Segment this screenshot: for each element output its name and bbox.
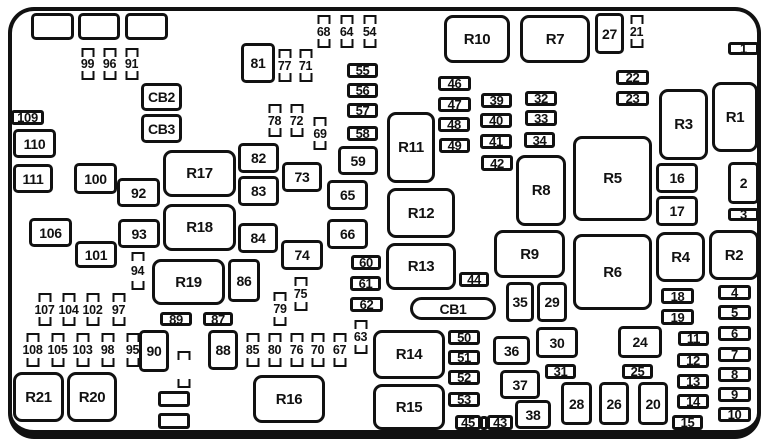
component-label: 51 (457, 351, 471, 364)
fuse-74: 74 (281, 240, 323, 270)
fuse-101: 101 (75, 241, 117, 268)
fuse-number-label: 99 (81, 58, 94, 71)
component-label: 35 (513, 295, 528, 309)
component-label: CB1 (439, 302, 466, 316)
fuse-10: 10 (718, 407, 751, 422)
mini-fuse-85: 85 (245, 333, 260, 367)
fuse-clip-bottom (294, 302, 307, 311)
component-label: R18 (186, 220, 213, 235)
component-label: 86 (237, 274, 252, 288)
component-label: R17 (186, 166, 213, 181)
component-label: 106 (39, 226, 61, 240)
mini-fuse-94: 94 (129, 252, 146, 290)
mini-fuse-71: 71 (298, 49, 313, 82)
fuse-clip-top (76, 333, 89, 342)
fuse-clip-bottom (268, 128, 281, 137)
component-label: 56 (356, 84, 370, 97)
mini-fuse-75: 75 (293, 277, 308, 311)
mini-fuse-76: 76 (289, 333, 304, 367)
empty-fuse-slot (175, 351, 192, 388)
component-label: 1 (740, 42, 747, 55)
fuse-111: 111 (13, 164, 53, 193)
fuse-92: 92 (117, 178, 160, 207)
component-label: 43 (493, 416, 507, 429)
fuse-clip-bottom (81, 71, 94, 80)
fuse-14: 14 (677, 394, 709, 409)
fuse-26: 26 (599, 382, 629, 425)
fuse-81: 81 (241, 43, 275, 83)
fuse-5: 5 (718, 305, 751, 320)
component-label: 32 (534, 92, 548, 105)
fuse-52: 52 (448, 370, 480, 385)
fuse-number-label: 77 (278, 59, 291, 72)
fuse-7: 7 (718, 347, 751, 362)
fuse-30: 30 (536, 327, 578, 358)
relay-r3: R3 (659, 89, 708, 160)
relay-r20: R20 (67, 372, 117, 422)
fuse-56: 56 (347, 83, 378, 98)
fuse-clip-top (86, 293, 99, 302)
relay-r1: R1 (712, 82, 758, 152)
component-label: 37 (513, 378, 528, 392)
fuse-47: 47 (438, 97, 471, 112)
component-label: 50 (457, 331, 471, 344)
fuse-clip-bottom (311, 358, 324, 367)
fuse-number-label: 85 (246, 344, 259, 357)
fuse-clip-bottom (333, 358, 346, 367)
fuse-24: 24 (618, 326, 662, 358)
fuse-55: 55 (347, 63, 378, 78)
component-label: 12 (686, 354, 700, 367)
relay-r18: R18 (163, 204, 236, 251)
fuse-clip-top (268, 104, 281, 113)
fuse-15: 15 (672, 415, 703, 430)
fuse-37: 37 (500, 370, 540, 399)
fuse-number-label: 78 (268, 114, 281, 127)
fuse-clip-top (354, 320, 367, 329)
relay-r16: R16 (253, 375, 325, 423)
circuit-breaker-cb2: CB2 (141, 83, 182, 111)
mini-fuse-77: 77 (277, 49, 292, 82)
component-label: 8 (731, 368, 738, 381)
fuse-48: 48 (438, 117, 470, 132)
fuse-number-label: 54 (363, 25, 376, 38)
component-label: 62 (360, 298, 374, 311)
fuse-59: 59 (338, 146, 378, 175)
mini-fuse-63: 63 (352, 320, 369, 354)
fuse-34: 34 (524, 132, 555, 148)
fuse-clip-top (177, 351, 190, 360)
component-label: 58 (356, 127, 370, 140)
fuse-clip-bottom (354, 345, 367, 354)
fuse-11: 11 (678, 331, 709, 346)
component-label: 57 (356, 104, 370, 117)
fuse-clip-top (278, 49, 291, 58)
fuse-27: 27 (595, 13, 624, 54)
component-label: 55 (356, 64, 370, 77)
fuse-clip-top (314, 117, 327, 126)
fuse-46: 46 (438, 76, 471, 91)
component-label: 10 (728, 408, 742, 421)
relay-r15: R15 (373, 384, 445, 430)
component-label: R15 (396, 400, 423, 415)
component-label: 36 (504, 344, 519, 358)
fuse-6: 6 (718, 326, 751, 341)
component-label: 39 (490, 94, 504, 107)
fuse-clip-bottom (630, 39, 643, 48)
fuse-number-label: 108 (23, 344, 43, 357)
mini-fuse-54: 54 (362, 15, 377, 48)
fuse-number-label: 67 (333, 344, 346, 357)
component-label: 28 (569, 397, 584, 411)
fuse-65: 65 (327, 180, 368, 210)
component-label: 52 (457, 371, 471, 384)
mini-fuse-69: 69 (312, 117, 328, 150)
fuse-110: 110 (13, 129, 56, 158)
component-label: R5 (603, 171, 622, 186)
relay-r17: R17 (163, 150, 236, 197)
fuse-89: 89 (160, 312, 192, 326)
fuse-66: 66 (327, 219, 368, 249)
fuse-clip-top (630, 15, 643, 24)
fuse-clip-bottom (177, 379, 190, 388)
component-label: 66 (340, 227, 355, 241)
relay-r12: R12 (387, 188, 455, 238)
empty-slot (78, 13, 120, 40)
fuse-clip-bottom (125, 71, 138, 80)
fuse-12: 12 (677, 353, 709, 368)
fuse-clip-top (317, 15, 330, 24)
mini-fuse-91: 91 (124, 48, 139, 80)
fuse-number-label: 103 (73, 344, 93, 357)
component-label: 11 (687, 332, 700, 345)
component-label: R3 (674, 117, 693, 132)
fuse-clip-top (311, 333, 324, 342)
component-label: R16 (276, 392, 303, 407)
component-label: R1 (726, 110, 745, 125)
relay-r21: R21 (13, 372, 64, 422)
fuse-number-label: 102 (83, 303, 103, 316)
fuse-clip-bottom (131, 281, 144, 290)
relay-r2: R2 (709, 230, 759, 280)
fuse-43: 43 (487, 415, 513, 430)
component-label: 100 (84, 172, 106, 186)
fuse-number-label: 95 (126, 344, 139, 357)
component-label: CB3 (148, 122, 175, 136)
fuse-clip-top (268, 333, 281, 342)
fuse-clip-bottom (38, 317, 51, 326)
component-label: 88 (216, 343, 231, 357)
fuse-clip-top (274, 292, 287, 301)
component-label: R6 (603, 265, 622, 280)
fuse-clip-top (112, 293, 125, 302)
component-label: 73 (295, 170, 310, 184)
component-label: 2 (740, 176, 748, 190)
component-label: R13 (408, 259, 435, 274)
mini-fuse-105: 105 (50, 333, 65, 367)
component-label: 6 (731, 327, 738, 340)
component-label: CB2 (148, 90, 175, 104)
component-label: 30 (550, 336, 565, 350)
relay-r4: R4 (656, 232, 705, 282)
component-label: 17 (670, 204, 685, 218)
component-label: 84 (251, 231, 266, 245)
fuse-clip-top (294, 277, 307, 286)
mini-fuse-72: 72 (289, 104, 304, 137)
mini-fuse-96: 96 (102, 48, 117, 80)
fuse-clip-top (340, 15, 353, 24)
fuse-number-label: 69 (313, 127, 326, 140)
fuse-number-label: 64 (340, 25, 353, 38)
fuse-clip-top (103, 48, 116, 57)
fuse-2: 2 (728, 162, 759, 204)
fuse-clip-bottom (314, 141, 327, 150)
fuse-60: 60 (351, 255, 381, 270)
mini-fuse-64: 64 (339, 15, 354, 48)
component-label: 74 (295, 248, 310, 262)
component-label: R9 (520, 247, 539, 262)
mini-fuse-104: 104 (61, 293, 76, 326)
fuse-clip-top (333, 333, 346, 342)
fuse-83: 83 (238, 176, 279, 206)
fuse-39: 39 (481, 93, 512, 108)
fuse-23: 23 (616, 91, 649, 106)
fuse-number-label: 72 (290, 114, 303, 127)
fuse-49: 49 (439, 138, 470, 153)
fuse-41: 41 (480, 134, 512, 149)
fuse-100: 100 (74, 163, 117, 194)
component-label: 9 (731, 388, 738, 401)
fuse-number-label: 94 (131, 265, 144, 278)
fuse-106: 106 (29, 218, 72, 247)
mini-fuse-107: 107 (37, 293, 52, 326)
fuse-clip-top (290, 104, 303, 113)
fuse-clip-bottom (278, 73, 291, 82)
fuse-clip-bottom (299, 73, 312, 82)
mini-fuse-103: 103 (75, 333, 90, 367)
fuse-clip-bottom (62, 317, 75, 326)
mini-fuse-108: 108 (25, 333, 40, 367)
component-label: 44 (467, 273, 481, 286)
empty-slot (125, 13, 168, 40)
fuse-number-label: 76 (290, 344, 303, 357)
component-label: 81 (251, 56, 266, 70)
component-label: 93 (132, 227, 147, 241)
mini-fuse-80: 80 (267, 333, 282, 367)
fuse-93: 93 (118, 219, 160, 248)
component-label: 82 (251, 151, 266, 165)
fuse-8: 8 (718, 367, 751, 382)
fuse-50: 50 (448, 330, 480, 345)
fuse-number-label: 71 (299, 59, 312, 72)
fuse-number-label: 98 (101, 344, 114, 357)
fuse-clip-bottom (126, 358, 139, 367)
mini-fuse-99: 99 (80, 48, 95, 80)
component-label: 34 (533, 134, 547, 147)
fuse-clip-top (290, 333, 303, 342)
fuse-clip-top (51, 333, 64, 342)
relay-r13: R13 (386, 243, 456, 290)
fuse-28: 28 (561, 382, 592, 425)
fuse-clip-bottom (290, 128, 303, 137)
fuse-73: 73 (282, 162, 322, 192)
component-label: R4 (671, 250, 690, 265)
fuse-clip-bottom (317, 39, 330, 48)
fuse-clip-bottom (363, 39, 376, 48)
fuse-number-label: 75 (294, 288, 307, 301)
fuse-clip-top (101, 333, 114, 342)
fuse-clip-top (363, 15, 376, 24)
fuse-clip-bottom (86, 317, 99, 326)
fuse-clip-top (26, 333, 39, 342)
component-label: 25 (631, 365, 645, 378)
fuse-29: 29 (537, 282, 567, 322)
fuse-53: 53 (448, 392, 480, 407)
fuse-number-label: 70 (311, 344, 324, 357)
component-label: 42 (490, 157, 504, 170)
component-label: R10 (464, 32, 491, 47)
component-label: 89 (169, 313, 183, 326)
component-label: R12 (408, 206, 435, 221)
component-label: 5 (731, 306, 738, 319)
fuse-clip-top (125, 48, 138, 57)
fuse-61: 61 (350, 276, 381, 291)
component-label: 41 (489, 135, 503, 148)
component-label: 111 (23, 172, 44, 186)
mini-fuse-67: 67 (332, 333, 347, 367)
fuse-clip-top (126, 333, 139, 342)
fuse-clip-bottom (268, 358, 281, 367)
component-label: R20 (79, 390, 106, 405)
fuse-box-diagram: 999691CB2CB3109110111100921069310194R17R… (0, 0, 768, 441)
fuse-17: 17 (656, 196, 698, 226)
component-label: 109 (17, 111, 38, 124)
component-label: 18 (671, 290, 685, 303)
mini-fuse-98: 98 (100, 333, 115, 367)
component-label: R11 (398, 140, 424, 155)
mini-fuse-79: 79 (272, 292, 288, 326)
relay-r9: R9 (494, 230, 565, 278)
fuse-22: 22 (616, 70, 649, 85)
component-label: R19 (175, 275, 202, 290)
fuse-3: 3 (728, 208, 759, 221)
component-label: 48 (447, 118, 461, 131)
fuse-clip-top (299, 49, 312, 58)
fuse-number-label: 79 (273, 303, 286, 316)
component-label: 19 (671, 311, 685, 324)
component-label: 46 (448, 77, 462, 90)
fuse-number-label: 63 (354, 331, 367, 344)
circuit-breaker-cb3: CB3 (141, 114, 182, 143)
component-label: 3 (740, 208, 747, 221)
fuse-87: 87 (203, 312, 233, 326)
fuse-9: 9 (718, 387, 751, 402)
fuse-clip-bottom (51, 358, 64, 367)
fuse-clip-top (81, 48, 94, 57)
relay-r10: R10 (444, 15, 510, 63)
component-label: 33 (534, 112, 548, 125)
mini-fuse-70: 70 (310, 333, 325, 367)
relay-r19: R19 (152, 259, 225, 305)
fuse-16: 16 (656, 163, 698, 193)
component-label: 14 (686, 395, 700, 408)
component-label: 26 (607, 397, 622, 411)
fuse-clip-bottom (246, 358, 259, 367)
empty-slot (158, 391, 190, 407)
fuse-number-label: 96 (103, 58, 116, 71)
fuse-20: 20 (638, 382, 668, 425)
fuse-clip-bottom (112, 317, 125, 326)
component-label: 87 (211, 313, 225, 326)
fuse-42: 42 (481, 155, 513, 171)
relay-r14: R14 (373, 330, 445, 379)
fuse-clip-top (38, 293, 51, 302)
fuse-32: 32 (525, 91, 557, 106)
component-label: 29 (545, 295, 560, 309)
fuse-clip-top (131, 252, 144, 261)
relay-r8: R8 (516, 155, 566, 226)
fuse-clip-top (246, 333, 259, 342)
component-label: 61 (359, 277, 373, 290)
fuse-clip-bottom (103, 71, 116, 80)
component-label: 20 (646, 397, 661, 411)
fuse-clip-bottom (26, 358, 39, 367)
mini-fuse-78: 78 (267, 104, 282, 137)
fuse-4: 4 (718, 285, 751, 300)
component-label: 24 (633, 335, 648, 349)
fuse-number-label: 68 (317, 25, 330, 38)
component-label: R14 (396, 347, 423, 362)
component-label: 45 (461, 416, 475, 429)
circuit-breaker-cb1: CB1 (410, 297, 496, 320)
fuse-18: 18 (661, 288, 694, 304)
component-label: 31 (554, 365, 568, 378)
fuse-31: 31 (545, 364, 576, 379)
mini-fuse-97: 97 (111, 293, 126, 326)
fuse-clip-top (62, 293, 75, 302)
fuse-number-label: 97 (112, 303, 125, 316)
component-label: 7 (731, 348, 738, 361)
component-label: R8 (532, 183, 551, 198)
fuse-clip-bottom (76, 358, 89, 367)
component-label: 101 (85, 248, 107, 262)
component-label: 65 (340, 188, 355, 202)
fuse-84: 84 (238, 223, 278, 253)
fuse-clip-bottom (290, 358, 303, 367)
fuse-13: 13 (677, 374, 709, 389)
fuse-86: 86 (228, 259, 260, 302)
component-label: R21 (25, 390, 52, 405)
component-label: R2 (725, 248, 744, 263)
fuse-36: 36 (493, 336, 530, 365)
component-label: 40 (489, 114, 503, 127)
fuse-clip-bottom (101, 358, 114, 367)
component-label: 59 (351, 154, 366, 168)
component-label: 49 (448, 139, 462, 152)
fuse-number-label: 91 (125, 58, 138, 71)
fuse-38: 38 (515, 400, 551, 429)
fuse-109: 109 (11, 110, 44, 125)
mini-fuse-21: 21 (628, 15, 645, 48)
fuse-90: 90 (139, 330, 169, 372)
fuse-1: 1 (728, 42, 759, 55)
component-label: 83 (251, 184, 266, 198)
component-label: 23 (626, 92, 640, 105)
fuse-35: 35 (506, 282, 534, 322)
fuse-clip-bottom (274, 317, 287, 326)
fuse-58: 58 (347, 126, 378, 141)
empty-slot (158, 413, 190, 429)
